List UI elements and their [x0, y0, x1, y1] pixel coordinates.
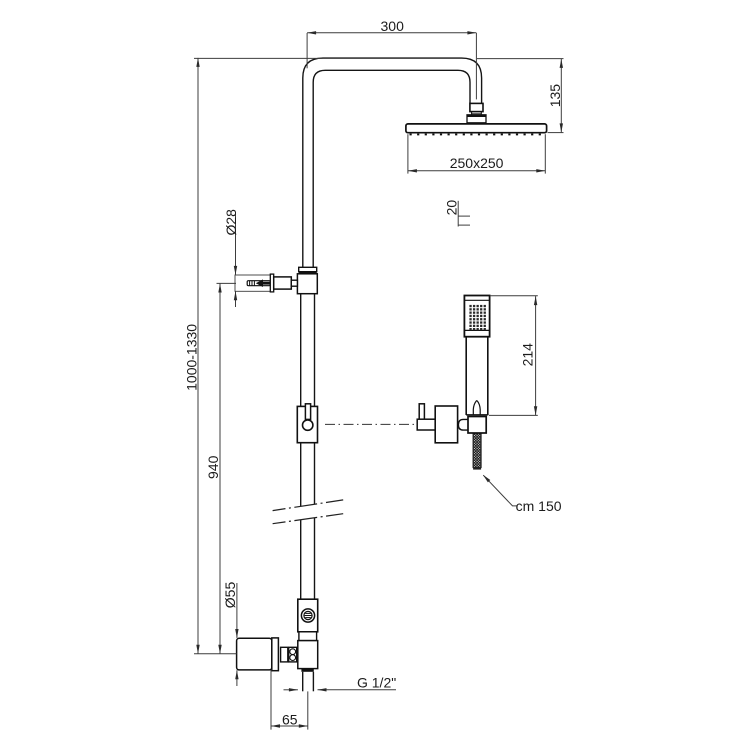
svg-text:300: 300 — [381, 18, 405, 34]
svg-text:940: 940 — [205, 455, 221, 479]
svg-text:250x250: 250x250 — [450, 155, 504, 171]
svg-text:65: 65 — [282, 712, 298, 728]
svg-text:Ø28: Ø28 — [223, 209, 239, 236]
svg-text:214: 214 — [520, 343, 536, 367]
svg-text:cm 150: cm 150 — [516, 498, 562, 514]
svg-text:135: 135 — [547, 84, 563, 108]
svg-text:1000-1330: 1000-1330 — [184, 324, 200, 391]
svg-text:Ø55: Ø55 — [222, 582, 238, 609]
svg-text:20: 20 — [444, 200, 460, 216]
svg-text:G 1/2": G 1/2" — [357, 675, 396, 691]
